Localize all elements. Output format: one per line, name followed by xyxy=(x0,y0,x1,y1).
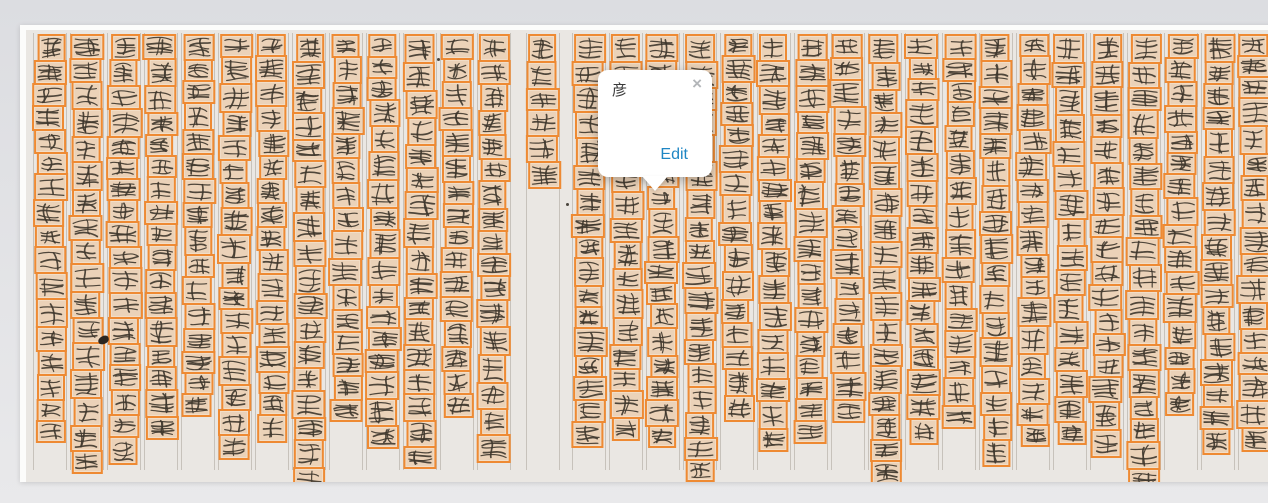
character-annotation-box[interactable] xyxy=(1092,333,1125,356)
character-annotation-box[interactable] xyxy=(758,428,788,452)
character-annotation-box[interactable] xyxy=(1204,34,1235,63)
character-annotation-box[interactable] xyxy=(479,134,507,160)
character-annotation-box[interactable] xyxy=(575,285,603,308)
character-annotation-box[interactable] xyxy=(1090,429,1121,458)
character-annotation-box[interactable] xyxy=(106,157,138,180)
character-annotation-box[interactable] xyxy=(650,303,678,329)
character-annotation-box[interactable] xyxy=(794,208,827,238)
character-annotation-box[interactable] xyxy=(370,207,399,231)
character-annotation-box[interactable] xyxy=(760,113,789,136)
character-annotation-box[interactable] xyxy=(106,221,140,248)
character-annotation-box[interactable] xyxy=(184,102,212,131)
character-annotation-box[interactable] xyxy=(725,368,753,397)
character-annotation-box[interactable] xyxy=(183,328,215,353)
character-annotation-box[interactable] xyxy=(147,155,177,178)
character-annotation-box[interactable] xyxy=(1053,34,1084,64)
character-annotation-box[interactable] xyxy=(73,108,103,138)
character-annotation-box[interactable] xyxy=(70,34,104,60)
character-annotation-box[interactable] xyxy=(910,346,939,371)
character-annotation-box[interactable] xyxy=(68,215,102,241)
character-annotation-box[interactable] xyxy=(1054,294,1084,323)
character-annotation-box[interactable] xyxy=(869,266,901,294)
character-annotation-box[interactable] xyxy=(909,418,938,445)
character-annotation-box[interactable] xyxy=(871,414,900,441)
character-annotation-box[interactable] xyxy=(146,176,175,203)
character-annotation-box[interactable] xyxy=(294,317,326,343)
character-annotation-box[interactable] xyxy=(293,240,326,267)
character-annotation-box[interactable] xyxy=(1052,141,1085,167)
close-icon[interactable]: × xyxy=(690,73,704,94)
character-annotation-box[interactable] xyxy=(183,178,216,204)
character-annotation-box[interactable] xyxy=(687,363,716,388)
character-annotation-box[interactable] xyxy=(1239,373,1268,402)
character-annotation-box[interactable] xyxy=(333,207,364,232)
character-annotation-box[interactable] xyxy=(1240,253,1268,277)
character-annotation-box[interactable] xyxy=(73,397,102,427)
character-annotation-box[interactable] xyxy=(218,356,250,386)
character-annotation-box[interactable] xyxy=(34,225,63,248)
character-annotation-box[interactable] xyxy=(332,34,360,58)
character-annotation-box[interactable] xyxy=(443,181,474,205)
character-annotation-box[interactable] xyxy=(1238,76,1268,99)
character-annotation-box[interactable] xyxy=(574,399,605,423)
character-annotation-box[interactable] xyxy=(980,392,1012,416)
character-annotation-box[interactable] xyxy=(1091,61,1123,88)
character-annotation-box[interactable] xyxy=(609,218,642,243)
character-annotation-box[interactable] xyxy=(332,182,360,209)
character-annotation-box[interactable] xyxy=(795,398,826,422)
character-annotation-box[interactable] xyxy=(836,155,864,185)
character-annotation-box[interactable] xyxy=(406,273,438,299)
character-annotation-box[interactable] xyxy=(1017,179,1049,203)
character-annotation-box[interactable] xyxy=(909,323,938,348)
character-annotation-box[interactable] xyxy=(1240,125,1268,155)
character-annotation-box[interactable] xyxy=(945,229,976,259)
character-annotation-box[interactable] xyxy=(1202,182,1234,211)
character-annotation-box[interactable] xyxy=(945,281,973,310)
character-annotation-box[interactable] xyxy=(646,282,676,305)
character-annotation-box[interactable] xyxy=(1128,468,1160,482)
character-annotation-box[interactable] xyxy=(831,34,862,59)
character-annotation-box[interactable] xyxy=(798,34,828,61)
character-annotation-box[interactable] xyxy=(794,236,826,262)
character-annotation-box[interactable] xyxy=(1202,306,1230,335)
character-annotation-box[interactable] xyxy=(369,229,400,259)
character-annotation-box[interactable] xyxy=(944,330,976,358)
character-annotation-box[interactable] xyxy=(185,254,215,278)
character-annotation-box[interactable] xyxy=(1058,218,1086,247)
character-annotation-box[interactable] xyxy=(444,320,472,348)
character-annotation-box[interactable] xyxy=(982,439,1010,467)
character-annotation-box[interactable] xyxy=(439,107,473,131)
character-annotation-box[interactable] xyxy=(942,58,976,82)
character-annotation-box[interactable] xyxy=(368,327,402,351)
character-annotation-box[interactable] xyxy=(443,58,471,83)
character-annotation-box[interactable] xyxy=(32,83,66,107)
character-annotation-box[interactable] xyxy=(109,108,143,138)
character-annotation-box[interactable] xyxy=(70,369,102,399)
character-annotation-box[interactable] xyxy=(1017,297,1051,327)
character-annotation-box[interactable] xyxy=(832,226,862,251)
character-annotation-box[interactable] xyxy=(1165,392,1194,416)
character-annotation-box[interactable] xyxy=(1241,175,1268,201)
character-annotation-box[interactable] xyxy=(221,384,251,411)
character-annotation-box[interactable] xyxy=(832,399,865,423)
character-annotation-box[interactable] xyxy=(332,82,361,109)
character-annotation-box[interactable] xyxy=(645,399,679,427)
character-annotation-box[interactable] xyxy=(721,194,750,224)
character-annotation-box[interactable] xyxy=(145,416,178,440)
character-annotation-box[interactable] xyxy=(257,414,287,443)
character-annotation-box[interactable] xyxy=(796,158,826,183)
character-annotation-box[interactable] xyxy=(869,162,900,190)
character-annotation-box[interactable] xyxy=(217,135,250,161)
character-annotation-box[interactable] xyxy=(403,62,435,92)
character-annotation-box[interactable] xyxy=(147,58,176,87)
character-annotation-box[interactable] xyxy=(945,150,974,179)
character-annotation-box[interactable] xyxy=(981,365,1011,394)
character-annotation-box[interactable] xyxy=(109,343,140,366)
character-annotation-box[interactable] xyxy=(871,62,900,91)
character-annotation-box[interactable] xyxy=(1017,83,1048,106)
character-annotation-box[interactable] xyxy=(644,261,678,284)
character-annotation-box[interactable] xyxy=(182,129,214,155)
character-annotation-box[interactable] xyxy=(108,199,138,223)
character-annotation-box[interactable] xyxy=(367,77,397,101)
character-annotation-box[interactable] xyxy=(1202,428,1230,455)
character-annotation-box[interactable] xyxy=(367,257,400,286)
character-annotation-box[interactable] xyxy=(979,133,1011,159)
character-annotation-box[interactable] xyxy=(798,283,826,309)
character-annotation-box[interactable] xyxy=(945,125,973,152)
character-annotation-box[interactable] xyxy=(982,312,1010,339)
character-annotation-box[interactable] xyxy=(794,307,828,333)
character-annotation-box[interactable] xyxy=(946,203,974,231)
character-annotation-box[interactable] xyxy=(609,368,640,392)
character-annotation-box[interactable] xyxy=(980,60,1012,88)
character-annotation-box[interactable] xyxy=(908,277,941,302)
character-annotation-box[interactable] xyxy=(256,346,290,373)
character-annotation-box[interactable] xyxy=(686,189,715,219)
character-annotation-box[interactable] xyxy=(1017,201,1048,228)
character-annotation-box[interactable] xyxy=(405,34,435,64)
character-annotation-box[interactable] xyxy=(1092,401,1120,431)
character-annotation-box[interactable] xyxy=(1055,86,1083,116)
character-annotation-box[interactable] xyxy=(293,341,324,369)
character-annotation-box[interactable] xyxy=(1203,107,1235,130)
character-annotation-box[interactable] xyxy=(147,244,176,271)
character-annotation-box[interactable] xyxy=(333,284,361,311)
character-annotation-box[interactable] xyxy=(684,339,714,365)
character-annotation-box[interactable] xyxy=(146,223,177,246)
character-annotation-box[interactable] xyxy=(366,306,400,329)
character-annotation-box[interactable] xyxy=(439,296,472,322)
character-annotation-box[interactable] xyxy=(757,329,788,354)
character-annotation-box[interactable] xyxy=(183,59,212,82)
character-annotation-box[interactable] xyxy=(371,125,399,153)
character-annotation-box[interactable] xyxy=(611,191,644,220)
character-annotation-box[interactable] xyxy=(1095,309,1123,335)
character-annotation-box[interactable] xyxy=(145,292,177,319)
character-annotation-box[interactable] xyxy=(983,414,1012,441)
character-annotation-box[interactable] xyxy=(218,409,250,436)
character-annotation-box[interactable] xyxy=(981,185,1010,213)
character-annotation-box[interactable] xyxy=(905,99,938,128)
character-annotation-box[interactable] xyxy=(796,377,828,400)
character-annotation-box[interactable] xyxy=(868,392,900,416)
character-annotation-box[interactable] xyxy=(295,265,325,295)
character-annotation-box[interactable] xyxy=(724,34,752,57)
character-annotation-box[interactable] xyxy=(685,412,714,439)
character-annotation-box[interactable] xyxy=(907,153,939,182)
character-annotation-box[interactable] xyxy=(1129,418,1158,443)
character-annotation-box[interactable] xyxy=(183,202,213,228)
character-annotation-box[interactable] xyxy=(107,178,141,201)
character-annotation-box[interactable] xyxy=(528,34,556,63)
character-annotation-box[interactable] xyxy=(869,89,897,114)
character-annotation-box[interactable] xyxy=(648,425,676,448)
character-annotation-box[interactable] xyxy=(1167,34,1198,59)
character-annotation-box[interactable] xyxy=(1166,131,1197,154)
character-annotation-box[interactable] xyxy=(1163,173,1195,199)
character-annotation-box[interactable] xyxy=(367,425,399,449)
character-annotation-box[interactable] xyxy=(835,183,865,207)
character-annotation-box[interactable] xyxy=(869,215,900,243)
character-annotation-box[interactable] xyxy=(648,208,677,238)
character-annotation-box[interactable] xyxy=(1018,378,1050,405)
character-annotation-box[interactable] xyxy=(908,78,940,101)
character-annotation-box[interactable] xyxy=(980,34,1009,62)
character-annotation-box[interactable] xyxy=(1020,254,1049,278)
character-annotation-box[interactable] xyxy=(1237,55,1268,78)
character-annotation-box[interactable] xyxy=(32,105,64,131)
character-annotation-box[interactable] xyxy=(1236,275,1268,304)
character-annotation-box[interactable] xyxy=(687,386,716,414)
character-annotation-box[interactable] xyxy=(979,107,1012,135)
character-annotation-box[interactable] xyxy=(685,34,715,63)
character-annotation-box[interactable] xyxy=(181,351,215,374)
character-annotation-box[interactable] xyxy=(1090,236,1123,263)
character-annotation-box[interactable] xyxy=(574,257,604,287)
character-annotation-box[interactable] xyxy=(441,346,471,372)
character-annotation-box[interactable] xyxy=(1128,369,1159,398)
character-annotation-box[interactable] xyxy=(574,327,608,357)
character-annotation-box[interactable] xyxy=(721,322,752,348)
character-annotation-box[interactable] xyxy=(109,59,137,87)
character-annotation-box[interactable] xyxy=(72,189,101,217)
character-annotation-box[interactable] xyxy=(332,157,360,184)
character-annotation-box[interactable] xyxy=(571,421,603,448)
character-annotation-box[interactable] xyxy=(610,390,644,419)
character-annotation-box[interactable] xyxy=(830,249,863,279)
character-annotation-box[interactable] xyxy=(1094,162,1124,189)
character-annotation-box[interactable] xyxy=(1128,137,1157,165)
character-annotation-box[interactable] xyxy=(796,355,824,379)
character-annotation-box[interactable] xyxy=(904,34,938,59)
character-annotation-box[interactable] xyxy=(147,112,178,136)
character-annotation-box[interactable] xyxy=(758,134,790,158)
character-annotation-box[interactable] xyxy=(70,263,104,293)
character-annotation-box[interactable] xyxy=(944,356,975,379)
character-annotation-box[interactable] xyxy=(442,155,471,183)
character-annotation-box[interactable] xyxy=(1129,215,1162,239)
character-annotation-box[interactable] xyxy=(106,136,139,159)
character-annotation-box[interactable] xyxy=(610,34,639,63)
character-annotation-box[interactable] xyxy=(184,303,215,330)
character-annotation-box[interactable] xyxy=(256,226,285,251)
character-annotation-box[interactable] xyxy=(721,346,752,370)
character-annotation-box[interactable] xyxy=(870,292,902,321)
character-annotation-box[interactable] xyxy=(830,57,863,81)
character-annotation-box[interactable] xyxy=(612,289,643,319)
character-annotation-box[interactable] xyxy=(367,56,397,79)
character-annotation-box[interactable] xyxy=(1020,424,1049,447)
character-annotation-box[interactable] xyxy=(403,369,435,395)
character-annotation-box[interactable] xyxy=(869,112,902,138)
character-annotation-box[interactable] xyxy=(947,101,975,127)
character-annotation-box[interactable] xyxy=(1019,55,1050,85)
character-annotation-box[interactable] xyxy=(217,234,251,264)
character-annotation-box[interactable] xyxy=(647,327,677,357)
character-annotation-box[interactable] xyxy=(480,408,508,436)
character-annotation-box[interactable] xyxy=(835,277,864,300)
character-annotation-box[interactable] xyxy=(909,57,937,80)
character-annotation-box[interactable] xyxy=(906,300,935,325)
character-annotation-box[interactable] xyxy=(722,271,754,301)
character-annotation-box[interactable] xyxy=(829,79,863,108)
character-annotation-box[interactable] xyxy=(722,55,756,83)
character-annotation-box[interactable] xyxy=(72,342,105,371)
character-annotation-box[interactable] xyxy=(1200,359,1233,386)
character-annotation-box[interactable] xyxy=(258,130,289,157)
character-annotation-box[interactable] xyxy=(36,272,68,300)
character-annotation-box[interactable] xyxy=(35,326,66,352)
character-annotation-box[interactable] xyxy=(478,34,509,62)
character-annotation-box[interactable] xyxy=(905,126,936,155)
character-annotation-box[interactable] xyxy=(222,182,250,209)
character-annotation-box[interactable] xyxy=(1203,156,1234,184)
character-annotation-box[interactable] xyxy=(405,144,436,169)
character-annotation-box[interactable] xyxy=(71,81,102,110)
character-annotation-box[interactable] xyxy=(221,207,253,236)
character-annotation-box[interactable] xyxy=(1090,214,1124,238)
character-annotation-box[interactable] xyxy=(404,297,434,320)
character-annotation-box[interactable] xyxy=(444,226,473,249)
character-annotation-box[interactable] xyxy=(294,160,326,188)
character-annotation-box[interactable] xyxy=(292,87,322,114)
character-annotation-box[interactable] xyxy=(36,298,68,328)
character-annotation-box[interactable] xyxy=(403,393,435,422)
character-annotation-box[interactable] xyxy=(942,405,976,429)
character-annotation-box[interactable] xyxy=(685,217,713,242)
character-annotation-box[interactable] xyxy=(145,366,176,391)
character-annotation-box[interactable] xyxy=(943,377,974,407)
character-annotation-box[interactable] xyxy=(34,129,66,154)
character-annotation-box[interactable] xyxy=(440,247,471,273)
character-annotation-box[interactable] xyxy=(1019,34,1049,57)
character-annotation-box[interactable] xyxy=(526,109,559,137)
character-annotation-box[interactable] xyxy=(294,439,324,469)
character-annotation-box[interactable] xyxy=(724,395,755,422)
character-annotation-box[interactable] xyxy=(182,153,214,180)
character-annotation-box[interactable] xyxy=(294,367,322,392)
character-annotation-box[interactable] xyxy=(1238,34,1268,57)
character-annotation-box[interactable] xyxy=(1055,321,1088,349)
character-annotation-box[interactable] xyxy=(37,374,65,401)
character-annotation-box[interactable] xyxy=(291,390,325,419)
character-annotation-box[interactable] xyxy=(222,262,250,289)
character-annotation-box[interactable] xyxy=(1016,226,1047,256)
character-annotation-box[interactable] xyxy=(944,308,977,332)
character-annotation-box[interactable] xyxy=(147,345,175,368)
character-annotation-box[interactable] xyxy=(868,34,898,64)
character-annotation-box[interactable] xyxy=(182,393,212,417)
character-annotation-box[interactable] xyxy=(258,371,289,394)
character-annotation-box[interactable] xyxy=(613,268,643,291)
character-annotation-box[interactable] xyxy=(109,267,143,294)
character-annotation-box[interactable] xyxy=(258,323,289,348)
character-annotation-box[interactable] xyxy=(478,230,508,255)
character-annotation-box[interactable] xyxy=(719,145,753,173)
character-annotation-box[interactable] xyxy=(1243,153,1268,177)
character-annotation-box[interactable] xyxy=(403,218,434,248)
character-annotation-box[interactable] xyxy=(1130,188,1159,217)
character-annotation-box[interactable] xyxy=(907,227,939,254)
character-annotation-box[interactable] xyxy=(1088,376,1122,403)
character-annotation-box[interactable] xyxy=(1165,347,1195,370)
character-annotation-box[interactable] xyxy=(477,60,510,85)
character-annotation-box[interactable] xyxy=(295,186,324,214)
character-annotation-box[interactable] xyxy=(833,323,863,348)
character-annotation-box[interactable] xyxy=(1129,163,1162,190)
character-annotation-box[interactable] xyxy=(577,188,605,216)
character-annotation-box[interactable] xyxy=(292,139,325,162)
character-annotation-box[interactable] xyxy=(365,349,399,373)
character-annotation-box[interactable] xyxy=(759,34,787,62)
character-annotation-box[interactable] xyxy=(793,420,826,444)
character-annotation-box[interactable] xyxy=(111,34,140,61)
character-annotation-box[interactable] xyxy=(650,355,678,378)
character-annotation-box[interactable] xyxy=(34,173,68,201)
character-annotation-box[interactable] xyxy=(979,86,1013,109)
character-annotation-box[interactable] xyxy=(256,34,285,57)
character-annotation-box[interactable] xyxy=(70,425,102,452)
character-annotation-box[interactable] xyxy=(1020,276,1049,299)
character-annotation-box[interactable] xyxy=(259,392,287,416)
character-annotation-box[interactable] xyxy=(1051,62,1085,88)
character-annotation-box[interactable] xyxy=(1166,271,1200,295)
character-annotation-box[interactable] xyxy=(367,179,399,209)
character-annotation-box[interactable] xyxy=(478,180,506,210)
character-annotation-box[interactable] xyxy=(294,417,326,441)
character-annotation-box[interactable] xyxy=(107,317,138,345)
character-annotation-box[interactable] xyxy=(480,275,510,301)
character-annotation-box[interactable] xyxy=(685,459,714,482)
character-annotation-box[interactable] xyxy=(1093,34,1122,63)
character-annotation-box[interactable] xyxy=(794,181,824,210)
character-annotation-box[interactable] xyxy=(1091,114,1122,138)
character-annotation-box[interactable] xyxy=(71,161,102,191)
character-annotation-box[interactable] xyxy=(1167,81,1197,107)
character-annotation-box[interactable] xyxy=(1055,190,1089,220)
character-annotation-box[interactable] xyxy=(648,236,680,263)
character-annotation-box[interactable] xyxy=(1164,105,1197,133)
character-annotation-box[interactable] xyxy=(294,293,328,319)
character-annotation-box[interactable] xyxy=(645,34,678,62)
character-annotation-box[interactable] xyxy=(1239,302,1268,330)
character-annotation-box[interactable] xyxy=(575,355,603,378)
character-annotation-box[interactable] xyxy=(331,230,363,260)
